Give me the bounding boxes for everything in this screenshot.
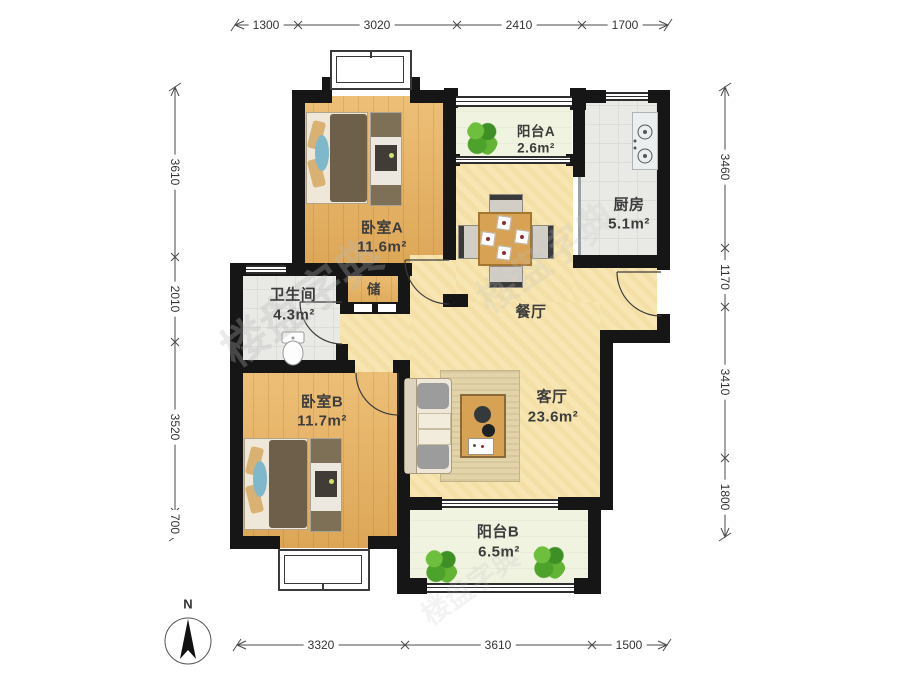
room-area-living: 23.6m² (528, 409, 579, 426)
wall (368, 536, 410, 549)
plate-icon (496, 245, 512, 261)
tray-item (481, 445, 484, 448)
wall (573, 255, 670, 268)
wall (292, 90, 305, 276)
wall (336, 272, 348, 304)
tray (468, 438, 494, 455)
bathroom-window (246, 265, 286, 274)
dim-top-2: 3020 (360, 18, 395, 32)
balcony-b-window (427, 583, 574, 593)
wall (340, 302, 410, 314)
wardrobe-icon (370, 112, 402, 206)
tv-light (329, 479, 334, 484)
bed-runner (315, 135, 329, 171)
room-label-bedroom-b: 卧室B (301, 391, 343, 412)
room-label-kitchen: 厨房 (613, 194, 644, 215)
bedroom-b-bay-window-inner (284, 555, 362, 584)
wardrobe-icon (310, 438, 342, 532)
sofa-seat (418, 413, 451, 429)
kettle (474, 406, 491, 423)
sofa-icon (404, 378, 452, 474)
room-area-kitchen: 5.1m² (608, 216, 650, 233)
dim-right-2: 1170 (718, 260, 732, 294)
wall (573, 95, 585, 177)
wardrobe-panel (311, 511, 341, 531)
room-label-balcony-a: 阳台A (517, 120, 555, 140)
sofa-seat (418, 429, 451, 445)
living-balcony-slider (442, 499, 558, 508)
wall (558, 497, 613, 510)
room-area-bathroom: 4.3m² (273, 307, 315, 324)
wall (443, 90, 456, 260)
room-area-balcony-b: 6.5m² (478, 544, 520, 561)
bedroom-a-bay-window-inner (336, 56, 404, 83)
dim-right-3: 3410 (718, 365, 732, 400)
sofa-back (405, 379, 417, 473)
plate-icon (514, 229, 530, 245)
sofa-cushion (417, 443, 449, 469)
room-label-bathroom: 卫生间 (270, 284, 317, 305)
bed-duvet (269, 440, 307, 528)
room-label-storage: 储 (367, 278, 381, 298)
plate-icon (496, 215, 512, 231)
bed-runner (253, 461, 267, 497)
dim-top-1: 1300 (249, 18, 284, 32)
plate-icon (480, 231, 496, 247)
dim-left-4: 700 (168, 510, 182, 538)
dim-top-4: 1700 (608, 18, 643, 32)
tv-panel (315, 471, 337, 497)
tray-item (473, 444, 476, 447)
plant-icon (466, 120, 498, 156)
dim-bottom-3: 1500 (612, 638, 647, 652)
balcony-a-window (456, 96, 572, 107)
wardrobe-panel (311, 439, 341, 463)
room-area-balcony-a: 2.6m² (517, 141, 555, 156)
storage-door (354, 304, 372, 312)
sofa-cushion (417, 383, 449, 409)
dimension-line-bottom (233, 639, 671, 651)
wall (400, 497, 442, 510)
wall (230, 360, 355, 373)
floor-plan: 楼盘字典 楼盘字典 楼盘字典 卧室A 11.6m² 阳台A 2.6m² 厨房 5… (0, 0, 906, 680)
chair-icon (532, 225, 554, 259)
compass-north-label: N (179, 597, 196, 612)
dim-bottom-1: 3320 (304, 638, 339, 652)
bed-duvet (330, 114, 367, 202)
room-area-bedroom-a: 11.6m² (357, 239, 407, 256)
chair-icon (489, 266, 523, 288)
wardrobe-panel (371, 113, 401, 137)
wall (612, 330, 670, 343)
plant-icon (424, 548, 458, 584)
wall (657, 90, 670, 270)
tv-panel (375, 145, 397, 171)
dimension-line-top (231, 19, 672, 31)
kettle (482, 424, 495, 437)
dim-bottom-2: 3610 (481, 638, 516, 652)
wall (600, 330, 613, 502)
dim-left-3: 3520 (168, 410, 182, 445)
wall (230, 263, 243, 549)
bed-icon (306, 112, 368, 204)
room-label-dining: 餐厅 (515, 301, 546, 322)
bed-icon (244, 438, 308, 530)
wardrobe-panel (371, 185, 401, 205)
bay-mullion (322, 583, 324, 591)
room-label-bedroom-a: 卧室A (361, 217, 403, 238)
kitchen-opening-line (578, 177, 581, 255)
chair-icon (458, 225, 480, 259)
coffee-table-icon (460, 394, 506, 458)
room-area-bedroom-b: 11.7m² (297, 413, 347, 430)
room-label-living: 客厅 (536, 386, 567, 407)
plant-icon (532, 544, 566, 580)
wall (230, 536, 280, 549)
wall (443, 294, 468, 307)
bay-mullion (370, 50, 372, 58)
dim-right-4: 1800 (718, 480, 732, 515)
dim-right-1: 3460 (718, 150, 732, 185)
wall (397, 578, 427, 594)
dim-left-1: 3610 (168, 155, 182, 190)
stove-icon (632, 112, 658, 170)
dim-left-2: 2010 (168, 282, 182, 317)
storage-door (378, 304, 396, 312)
north-arrow-icon (165, 618, 211, 664)
tv-light (389, 153, 394, 158)
kitchen-window (606, 92, 648, 101)
balcony-a-rail-window (456, 156, 570, 164)
wall (574, 578, 601, 594)
room-label-balcony-b: 阳台B (477, 521, 519, 542)
dim-top-3: 2410 (502, 18, 537, 32)
